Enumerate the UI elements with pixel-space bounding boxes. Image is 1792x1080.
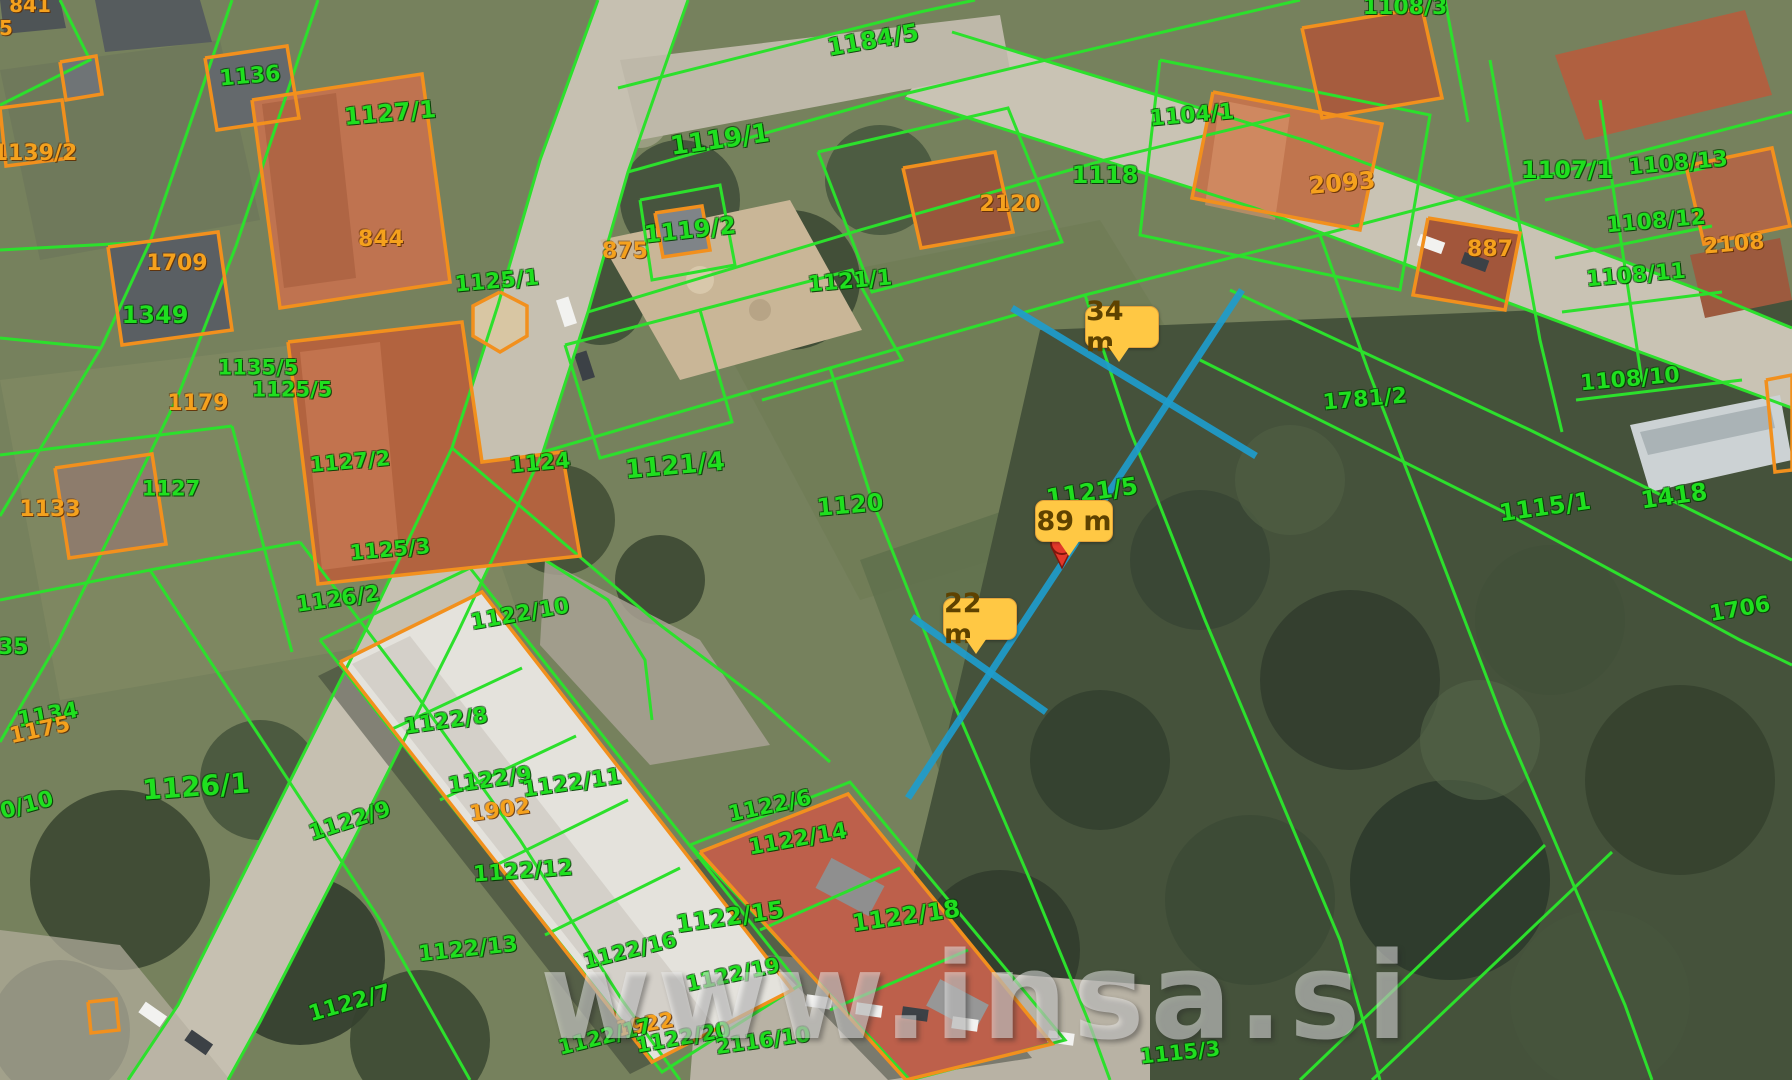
measurement-tag-89m: 89 m — [1035, 500, 1113, 542]
measurement-value: 89 m — [1036, 506, 1111, 537]
tag-pointer — [965, 638, 987, 654]
measurement-tag-22m: 22 m — [943, 598, 1017, 640]
building-outlines-orange — [0, 8, 1792, 1080]
parcel-boundaries-green — [0, 0, 1792, 1080]
tag-pointer — [1108, 346, 1130, 362]
measurement-tag-34m: 34 m — [1085, 306, 1159, 348]
cadastral-overlay — [0, 0, 1792, 1080]
map-canvas[interactable]: 841511361127/11139/2170913498441125/1118… — [0, 0, 1792, 1080]
measurement-lines — [908, 290, 1256, 798]
tag-pointer — [1058, 540, 1080, 556]
